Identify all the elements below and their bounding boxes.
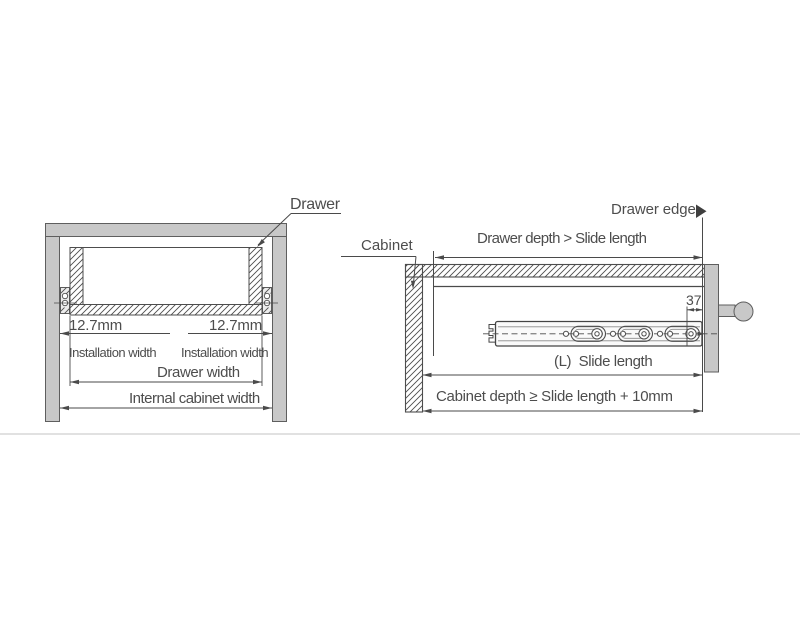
knob-stem xyxy=(719,305,736,317)
slide-length-label: (L) Slide length xyxy=(554,354,652,371)
cabinet-back-hatched xyxy=(406,265,423,413)
slide-rear-bracket xyxy=(489,325,496,343)
cabinet-top-panel xyxy=(46,224,287,237)
installation-width-left-label: Installation width xyxy=(69,346,156,360)
internal-cabinet-width-label: Internal cabinet width xyxy=(129,391,260,408)
cabinet-left-panel xyxy=(46,237,60,422)
drawer-front-panel xyxy=(705,265,754,373)
drawer-box xyxy=(70,248,262,305)
diagram-linework xyxy=(0,0,800,622)
offset-right-label: 12.7mm xyxy=(209,318,262,335)
left-view-drawer xyxy=(70,248,262,316)
drawer-edge-arrow-icon xyxy=(696,205,707,219)
knob xyxy=(734,302,753,321)
rear-offset-label: 37 xyxy=(686,293,702,308)
cabinet-label: Cabinet xyxy=(361,238,413,255)
drawer-bottom xyxy=(70,305,262,316)
cabinet-top-hatched xyxy=(406,265,705,278)
cabinet-label-leader xyxy=(341,257,416,290)
cabinet-right-panel xyxy=(273,237,287,422)
drawer-label: Drawer xyxy=(290,196,340,214)
drawer-edge-label: Drawer edge xyxy=(611,202,696,219)
drawer-left-wall xyxy=(70,248,83,305)
drawer-slide xyxy=(483,322,718,347)
dim-arrow xyxy=(60,331,69,335)
drawer-depth-rule-label: Drawer depth > Slide length xyxy=(477,231,646,248)
installation-width-right-label: Installation width xyxy=(181,346,268,360)
drawer-right-wall xyxy=(249,248,262,305)
offset-left-label: 12.7mm xyxy=(69,318,122,335)
drawer-width-label: Drawer width xyxy=(157,365,240,382)
drawer-slide-dimension-figure: Drawer 12.7mm 12.7mm Installation width … xyxy=(0,0,800,622)
cabinet-depth-rule-label: Cabinet depth ≥ Slide length + 10mm xyxy=(436,389,673,406)
dim-arrow xyxy=(263,331,272,335)
